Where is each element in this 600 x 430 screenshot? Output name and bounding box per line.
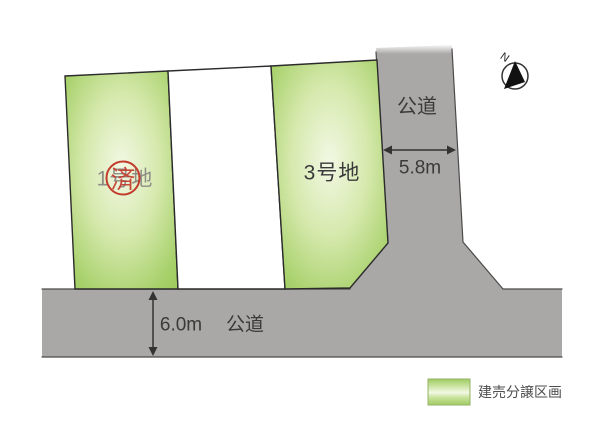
site-plan: 1号地 3号地 済 公道 5.8m 6.0m 公道 N xyxy=(0,0,600,430)
road-vertical-label: 公道 xyxy=(397,95,437,118)
road-horizontal xyxy=(42,289,562,357)
road-vertical-width-label: 5.8m xyxy=(399,158,441,179)
site-plan-canvas: 1号地 3号地 済 公道 5.8m 6.0m 公道 N xyxy=(0,0,600,430)
lot-2-parcel-vacant xyxy=(168,66,285,289)
compass-n-label: N xyxy=(498,51,511,65)
compass-icon: N xyxy=(498,51,528,89)
road-horizontal-width-label: 6.0m xyxy=(160,315,202,336)
legend: 建売分譲区画 xyxy=(428,379,562,405)
road-horizontal-label: 公道 xyxy=(226,314,264,336)
lot-3-label: 3号地 xyxy=(304,161,361,184)
legend-label: 建売分譲区画 xyxy=(478,384,562,400)
sold-stamp-text: 済 xyxy=(110,166,135,194)
sold-stamp: 済 xyxy=(107,162,140,195)
legend-swatch xyxy=(428,379,470,405)
road-top-fade xyxy=(373,44,455,54)
